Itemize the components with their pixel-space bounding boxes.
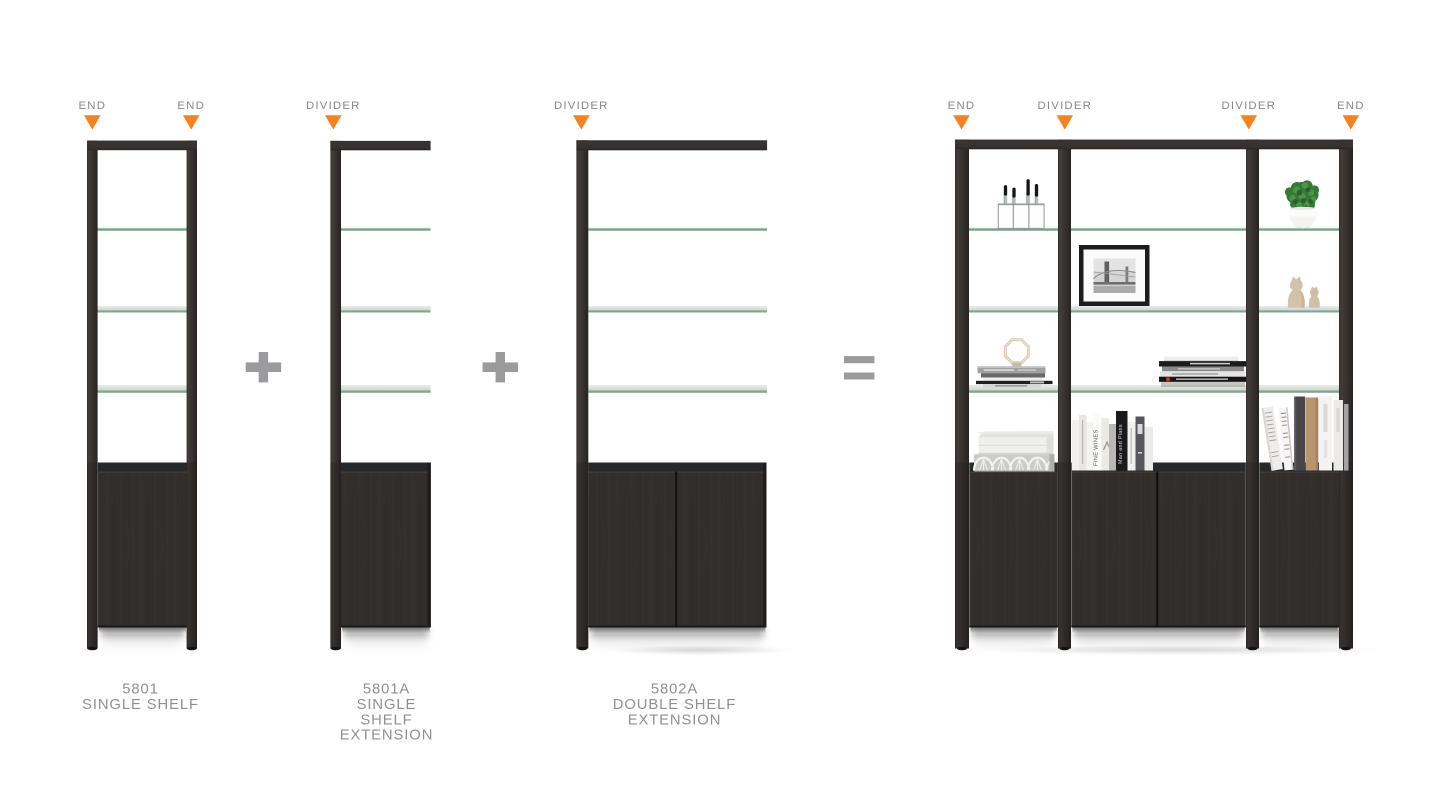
svg-text:5801A: 5801A: [363, 682, 410, 698]
svg-text:Man and Plans: Man and Plans: [1118, 424, 1124, 464]
svg-text:EXTENSION: EXTENSION: [340, 728, 434, 744]
svg-text:DIVIDER: DIVIDER: [306, 100, 361, 112]
svg-text:DIVIDER: DIVIDER: [1221, 100, 1276, 112]
svg-text:SINGLE: SINGLE: [357, 697, 417, 713]
svg-text:END: END: [948, 100, 976, 112]
svg-text:END: END: [78, 100, 106, 112]
svg-text:5802A: 5802A: [651, 682, 698, 698]
svg-text:END: END: [177, 100, 205, 112]
svg-text:DOUBLE SHELF: DOUBLE SHELF: [613, 697, 736, 713]
svg-text:FINE WINES: FINE WINES: [1093, 429, 1099, 466]
svg-text:EXTENSION: EXTENSION: [628, 712, 722, 728]
svg-text:DIVIDER: DIVIDER: [1037, 100, 1092, 112]
svg-text:DIVIDER: DIVIDER: [554, 100, 609, 112]
svg-text:END: END: [1337, 100, 1365, 112]
svg-text:SHELF: SHELF: [360, 712, 412, 728]
svg-text:5801: 5801: [122, 682, 159, 698]
svg-text:SINGLE SHELF: SINGLE SHELF: [82, 697, 199, 713]
